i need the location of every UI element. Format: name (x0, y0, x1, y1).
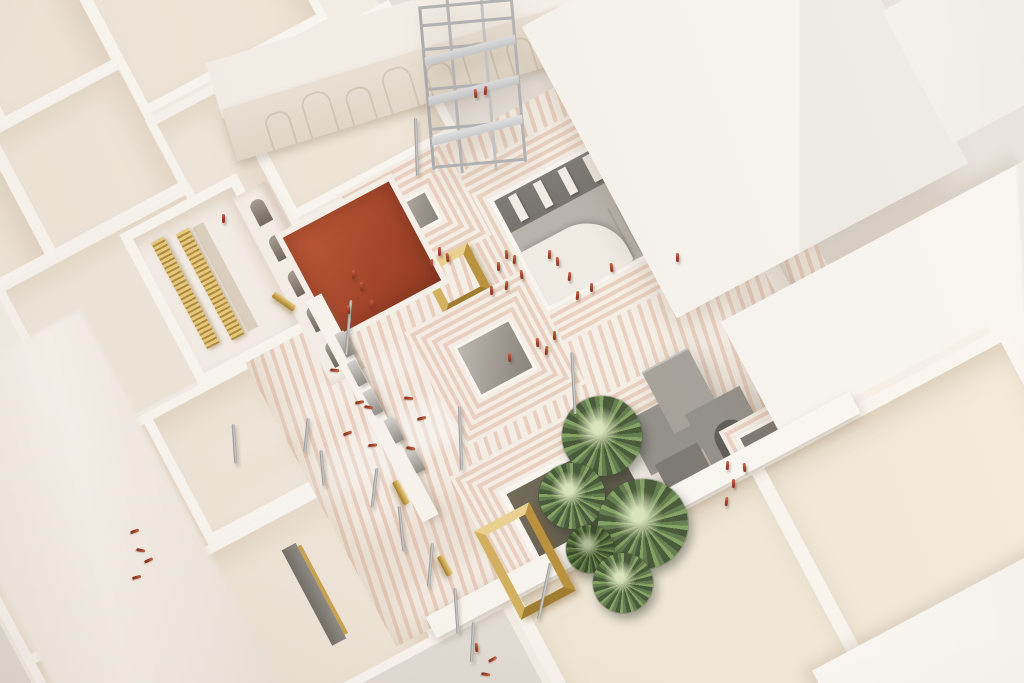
figurine (497, 262, 500, 271)
figurine (568, 272, 572, 281)
figurine (430, 259, 434, 268)
figurine (406, 446, 415, 451)
figurine (370, 300, 374, 309)
figurine (513, 255, 517, 264)
figurine (676, 253, 679, 262)
figurine (347, 305, 351, 314)
figurine (481, 672, 490, 677)
figurine (488, 656, 497, 663)
figurine (475, 643, 479, 652)
figurine (438, 247, 441, 256)
figurine (545, 346, 549, 355)
figurine (536, 338, 540, 347)
figurine (519, 270, 523, 279)
figurine (576, 291, 580, 300)
figurine (743, 463, 747, 472)
figurine (548, 250, 552, 259)
figurine (417, 416, 427, 422)
figurine (610, 263, 614, 272)
figurine (732, 479, 735, 488)
figurine (505, 281, 509, 290)
figurine (130, 528, 140, 534)
figurine (352, 270, 355, 279)
figurine (144, 557, 154, 564)
figurine (726, 461, 730, 470)
figurine (484, 86, 488, 95)
figurine (368, 443, 377, 447)
figurine (508, 353, 512, 362)
figurine (725, 497, 729, 506)
model-photo (0, 0, 1024, 683)
figurine (590, 283, 593, 292)
figurine (222, 214, 225, 223)
figurine (404, 396, 413, 400)
figurine (330, 368, 339, 372)
figurine (355, 400, 364, 405)
figurine (132, 575, 142, 581)
figurine (556, 257, 560, 266)
figurine (343, 430, 353, 436)
figurine (445, 253, 450, 262)
figurines-layer (0, 0, 1024, 683)
figurine (490, 286, 494, 295)
figurine (474, 89, 478, 98)
figurine (364, 405, 373, 410)
figurine (360, 282, 364, 291)
figurine (505, 250, 509, 259)
figurine (553, 331, 556, 340)
figurine (136, 548, 145, 553)
